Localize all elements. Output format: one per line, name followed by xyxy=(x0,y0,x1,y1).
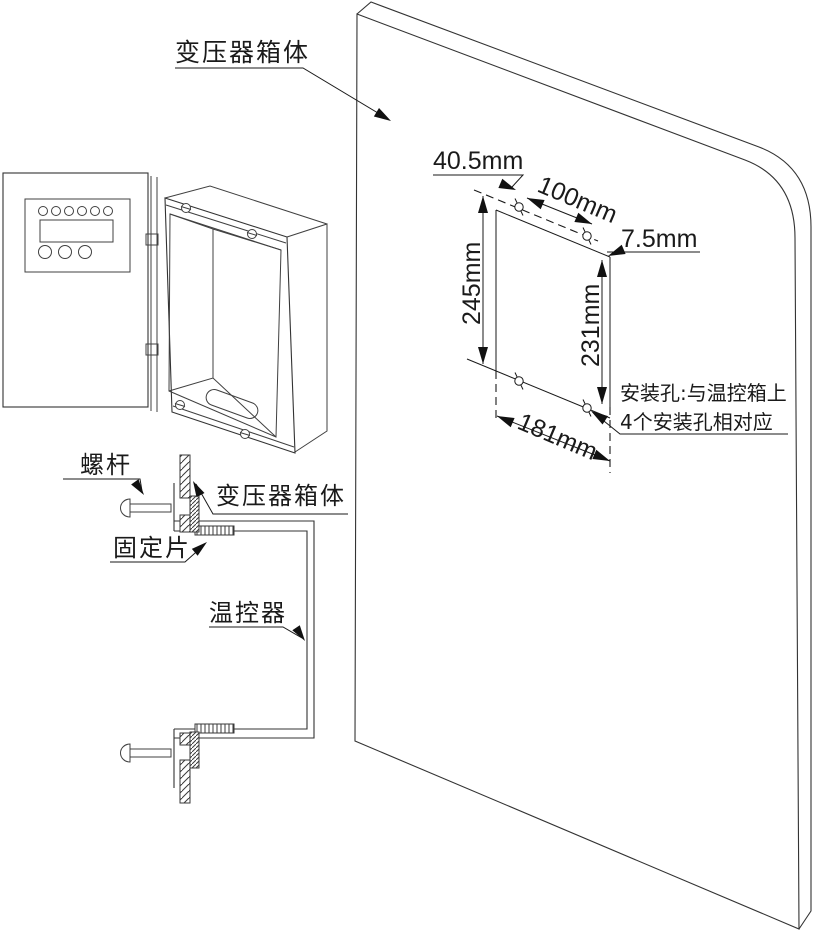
diagram-canvas: 变压器箱体 40.5mm 100mm 7.5mm xyxy=(0,0,826,934)
dim-opening-height: 245mm xyxy=(458,196,488,364)
dim-hole-spacing-y-label: 231mm xyxy=(577,284,605,367)
nut-block-bottom xyxy=(190,732,199,768)
frame-body-edges xyxy=(165,186,327,452)
nut-block-top xyxy=(190,496,199,532)
dim-181-arrow-left-icon xyxy=(495,411,515,427)
fixing-plate-label: 固定片 xyxy=(113,534,191,562)
door-button-icon xyxy=(39,246,52,259)
dim-offset-y: 7.5mm xyxy=(606,225,700,261)
dim-offset-x-label: 40.5mm xyxy=(433,147,523,175)
dim-245-arrow-top-icon xyxy=(478,196,488,213)
cable-slot xyxy=(204,387,260,421)
flange-fold-lines xyxy=(166,205,294,447)
thermostat-label-group: 温控器 xyxy=(209,599,309,644)
bracket-inner xyxy=(174,531,307,729)
frame-window xyxy=(169,214,281,437)
hinge-strip xyxy=(151,176,157,412)
panel-label-arrow-icon xyxy=(374,108,394,125)
dim-offset-x: 40.5mm xyxy=(433,147,523,195)
installation-diagram: 变压器箱体 40.5mm 100mm 7.5mm xyxy=(0,0,826,934)
screw-label-group: 螺杆 xyxy=(63,451,148,498)
dim-offset-x-arrow-icon xyxy=(498,179,518,195)
panel-front-face xyxy=(355,14,799,929)
section-detail: 螺杆 变压器箱体 固定片 温控器 xyxy=(63,451,348,803)
mounting-hole-top-left xyxy=(515,203,523,211)
panel-wall-label: 变压器箱体 xyxy=(216,482,346,510)
indicator-led-icon xyxy=(39,207,48,216)
indicator-led-icon xyxy=(91,207,100,216)
mounting-note-line1: 安装孔:与温控箱上 xyxy=(620,381,787,405)
frame-flange xyxy=(165,198,295,453)
panel-label-group: 变压器箱体 xyxy=(175,38,394,125)
screw-shaft-bottom xyxy=(130,749,171,757)
dim-hole-spacing-y: 231mm xyxy=(577,260,607,404)
door-display xyxy=(40,220,113,242)
mounting-note-line2: 4个安装孔相对应 xyxy=(620,410,773,434)
panel-wall-top-lower xyxy=(180,515,190,532)
transformer-panel xyxy=(355,2,811,929)
indicator-led-icon xyxy=(65,207,74,216)
indicator-led-icon xyxy=(104,207,113,216)
dim-245-arrow-bottom-icon xyxy=(478,347,488,364)
panel-label-leader xyxy=(175,68,388,119)
indicator-led-icon xyxy=(52,207,61,216)
screw-label: 螺杆 xyxy=(80,451,132,479)
thermostat-label-leader xyxy=(209,627,302,638)
panel-back-edge xyxy=(357,2,811,929)
dim-231-arrow-bottom-icon xyxy=(597,387,607,404)
dim-opening-width-label: 181mm xyxy=(514,408,602,466)
panel-wall-label-group: 变压器箱体 xyxy=(189,479,348,514)
controller-frame xyxy=(165,186,327,453)
screw-label-leader xyxy=(63,479,142,491)
screw-shaft-top xyxy=(130,504,171,512)
frame-interior-lines xyxy=(169,214,281,437)
dim-opening-width: 181mm xyxy=(495,408,612,466)
panel-wall-top-upper xyxy=(180,455,190,498)
dim-opening-height-label: 245mm xyxy=(458,242,486,325)
controller-door xyxy=(3,173,158,412)
screw-label-arrow-icon xyxy=(131,479,148,497)
mounting-hole-bottom-left xyxy=(515,377,523,385)
mounting-note: 安装孔:与温控箱上 4个安装孔相对应 xyxy=(588,381,788,434)
dim-231-arrow-top-icon xyxy=(597,260,607,277)
panel-wall-bottom-lower xyxy=(180,760,190,803)
thermostat-label: 温控器 xyxy=(209,599,287,627)
screw-head-bottom xyxy=(121,744,131,762)
door-button-icon xyxy=(59,246,72,259)
fixing-plate-thread-top xyxy=(195,526,234,535)
dim-hole-spacing-x: 100mm xyxy=(525,171,621,229)
door-button-icon xyxy=(79,246,92,259)
panel-wall-bottom-upper xyxy=(180,733,190,745)
screw-head-top xyxy=(121,499,131,517)
panel-label: 变压器箱体 xyxy=(175,38,310,67)
mounting-hole-top-right xyxy=(583,232,591,240)
mounting-hole-bottom-right xyxy=(583,404,591,412)
dim-offset-y-label: 7.5mm xyxy=(621,225,697,253)
indicator-led-icon xyxy=(78,207,87,216)
fixing-plate-label-group: 固定片 xyxy=(110,534,210,562)
fixing-plate-thread-bottom xyxy=(195,724,234,733)
dim-offset-y-arrow-icon xyxy=(606,245,626,261)
